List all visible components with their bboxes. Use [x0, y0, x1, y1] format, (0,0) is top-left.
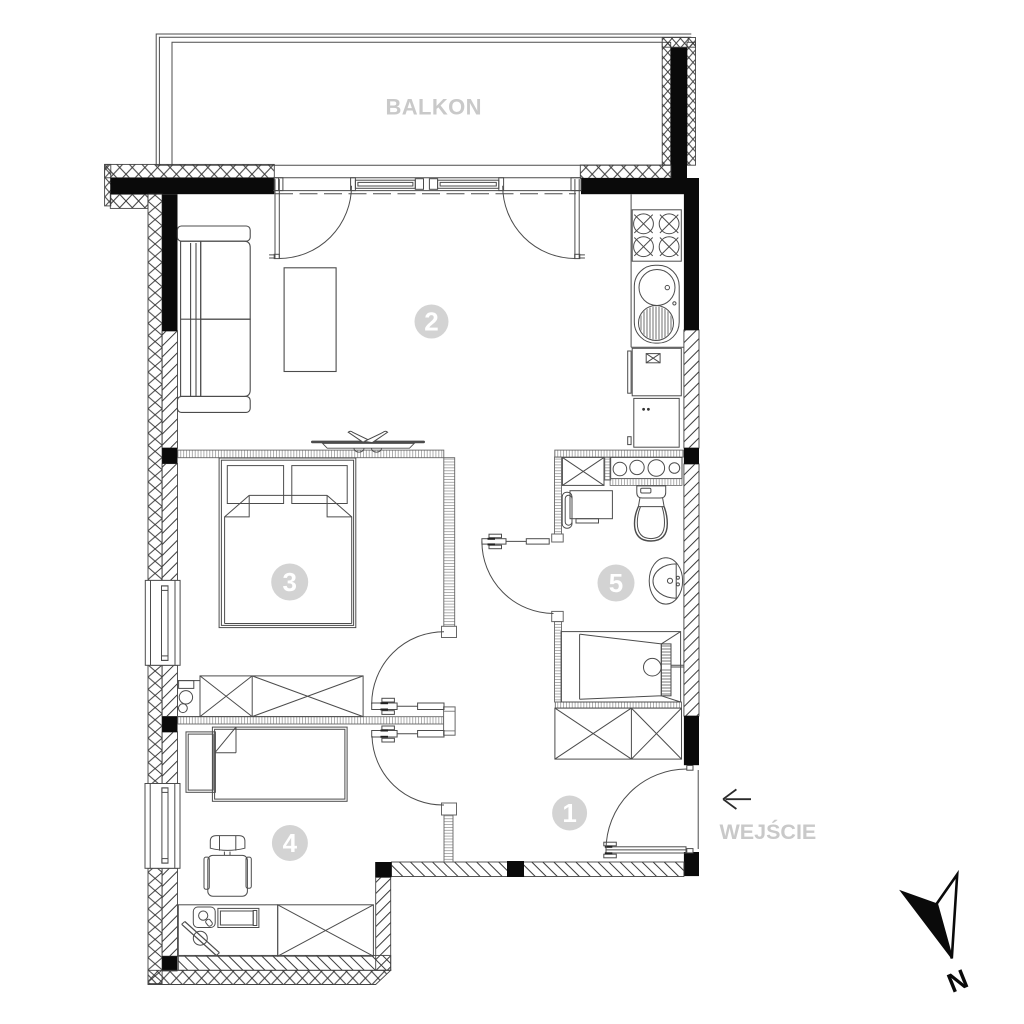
svg-text:2: 2 — [424, 307, 438, 337]
svg-text:4: 4 — [283, 828, 298, 858]
svg-text:N: N — [943, 964, 972, 999]
svg-text:5: 5 — [609, 568, 623, 598]
svg-text:3: 3 — [282, 567, 296, 597]
svg-text:BALKON: BALKON — [385, 95, 482, 120]
svg-text:1: 1 — [562, 798, 576, 828]
svg-text:WEJŚCIE: WEJŚCIE — [720, 819, 817, 844]
